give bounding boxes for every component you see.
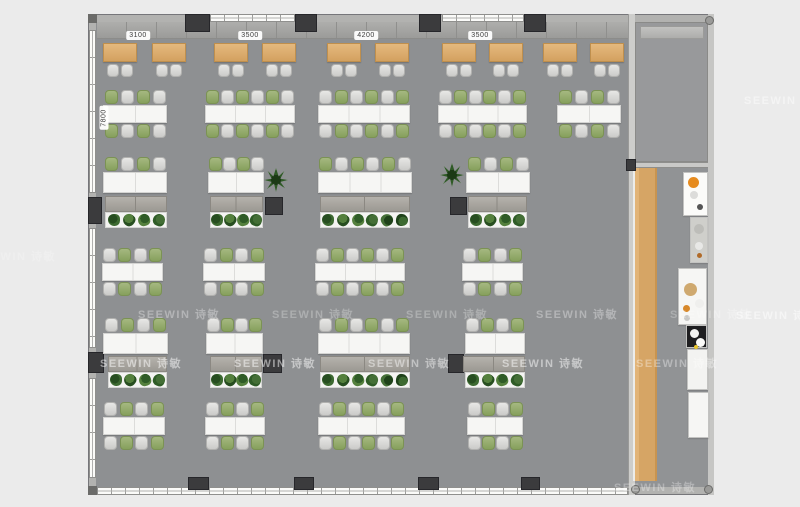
chair (439, 90, 452, 104)
column-pillar (524, 14, 546, 32)
chair (478, 282, 491, 296)
chair (366, 157, 379, 171)
chair (454, 124, 467, 138)
chair (281, 90, 294, 104)
chair (251, 282, 264, 296)
desk (466, 172, 530, 193)
chair (105, 157, 118, 171)
plant (137, 373, 152, 388)
chair (220, 282, 233, 296)
chair (335, 157, 348, 171)
chair (379, 64, 391, 77)
chair (483, 124, 496, 138)
planter-box (108, 372, 167, 388)
chair (484, 157, 497, 171)
lounge-table (103, 43, 137, 62)
chair (251, 248, 264, 262)
chair (331, 282, 344, 296)
chair (105, 90, 118, 104)
chair (335, 90, 348, 104)
chair (137, 124, 150, 138)
chair (206, 436, 219, 450)
chair (498, 90, 511, 104)
desk (318, 333, 410, 354)
plant (350, 373, 365, 388)
chair (333, 402, 346, 416)
chair (591, 90, 604, 104)
chair (350, 124, 363, 138)
lounge-table (543, 43, 577, 62)
chair (135, 402, 148, 416)
chair (135, 436, 148, 450)
chair (365, 318, 378, 332)
plant (379, 212, 396, 229)
column-pillar (265, 197, 283, 215)
lounge-table (590, 43, 624, 62)
chair (137, 90, 150, 104)
chair (575, 90, 588, 104)
chair (206, 90, 219, 104)
chair (377, 436, 390, 450)
chair (391, 402, 404, 416)
chair (594, 64, 606, 77)
chair (121, 64, 133, 77)
chair (149, 282, 162, 296)
chair (153, 157, 166, 171)
plant (136, 213, 151, 228)
chair (249, 318, 262, 332)
chair (221, 436, 234, 450)
chair (280, 64, 292, 77)
plant (235, 213, 250, 228)
chair (149, 248, 162, 262)
plant (395, 213, 408, 226)
chair (468, 402, 481, 416)
chair (607, 90, 620, 104)
chair (120, 402, 133, 416)
chair (500, 157, 513, 171)
chair (362, 436, 375, 450)
wall-corner (88, 486, 97, 495)
chair (345, 64, 357, 77)
plant (110, 374, 122, 386)
desk (557, 105, 621, 123)
plant (151, 212, 167, 228)
chair (396, 124, 409, 138)
plant (365, 212, 381, 228)
kitchen-unit (688, 392, 709, 438)
chair (153, 90, 166, 104)
chair (463, 248, 476, 262)
chair (591, 124, 604, 138)
corner-knob (705, 16, 714, 25)
chair (509, 248, 522, 262)
window (97, 487, 628, 495)
chair (235, 248, 248, 262)
storage-cabinet (320, 196, 410, 212)
watermark: SEEWIN 诗敏 (406, 306, 488, 322)
corner-knob (704, 485, 713, 494)
chair (559, 124, 572, 138)
chair (121, 90, 134, 104)
chair (151, 436, 164, 450)
chair (319, 157, 332, 171)
chair (103, 248, 116, 262)
chair (468, 436, 481, 450)
chair (104, 436, 117, 450)
plant (495, 373, 510, 388)
lounge-table (375, 43, 409, 62)
chair (134, 282, 147, 296)
chair (281, 124, 294, 138)
chair (346, 282, 359, 296)
window (210, 14, 295, 22)
chair (251, 90, 264, 104)
appliance-dot (684, 283, 697, 296)
floor-plan-canvas: 31003500420035007800 SEEWIN 诗敏SEEWIN 诗敏S… (0, 0, 800, 507)
watermark: SEEWIN 诗敏 (736, 307, 800, 323)
planter-box (105, 212, 167, 228)
column-pillar (626, 159, 636, 171)
plant (511, 212, 527, 228)
appliance-dot (688, 177, 699, 188)
chair (391, 282, 404, 296)
desk (103, 105, 167, 123)
meeting-room-cabinet (640, 26, 704, 39)
chair (513, 124, 526, 138)
storage-cabinet (468, 196, 527, 212)
chair (496, 402, 509, 416)
window (442, 14, 524, 22)
lounge-table (327, 43, 361, 62)
chair (319, 124, 332, 138)
chair (607, 124, 620, 138)
plant (247, 372, 263, 388)
chair (137, 157, 150, 171)
plant (379, 372, 396, 389)
chair (393, 64, 405, 77)
plant (322, 214, 334, 226)
chair (221, 318, 234, 332)
column-pillar (448, 354, 464, 373)
watermark: SEEWIN 诗敏 (368, 355, 450, 371)
window (89, 228, 96, 348)
chair (348, 402, 361, 416)
chair (396, 90, 409, 104)
plant (365, 372, 381, 388)
chair (460, 64, 472, 77)
desk (465, 333, 525, 354)
plant (122, 372, 139, 389)
plant (350, 213, 365, 228)
chair (391, 436, 404, 450)
watermark: SEEWIN 诗敏 (138, 306, 220, 322)
desk (318, 417, 405, 435)
watermark: SEEWIN 诗敏 (100, 355, 182, 371)
chair (331, 64, 343, 77)
chair (170, 64, 182, 77)
dimension-label: 7800 (100, 106, 109, 130)
chair (236, 402, 249, 416)
appliance-dot (697, 253, 702, 258)
plant (108, 214, 120, 226)
chair (235, 282, 248, 296)
chair (118, 248, 131, 262)
chair (333, 436, 346, 450)
chair (350, 90, 363, 104)
desk (208, 172, 264, 193)
chair (236, 124, 249, 138)
chair (469, 90, 482, 104)
watermark: SEEWIN 诗敏 (272, 306, 354, 322)
chair (319, 90, 332, 104)
chair (151, 402, 164, 416)
chair (204, 282, 217, 296)
desk (315, 263, 405, 281)
chair (121, 157, 134, 171)
lounge-table (262, 43, 296, 62)
plant (479, 372, 496, 389)
chair (498, 124, 511, 138)
chair (221, 402, 234, 416)
chair (346, 248, 359, 262)
chair (223, 157, 236, 171)
chair (118, 282, 131, 296)
chair (376, 282, 389, 296)
desk (205, 105, 295, 123)
appliance-dot (695, 242, 703, 250)
chair (513, 90, 526, 104)
chair (316, 282, 329, 296)
column-pillar (521, 477, 540, 490)
column-pillar (450, 197, 467, 215)
chair (236, 90, 249, 104)
chair (376, 248, 389, 262)
watermark: SEEWIN 诗敏 (744, 92, 800, 108)
plant (509, 372, 525, 388)
plant (470, 214, 482, 226)
chair (105, 318, 118, 332)
watermark: SEEWIN 诗敏 (614, 479, 696, 495)
chair (469, 124, 482, 138)
lounge-table (214, 43, 248, 62)
appliance-dot (690, 329, 699, 338)
chair (153, 124, 166, 138)
column-pillar (185, 14, 210, 32)
chair (463, 282, 476, 296)
chair (220, 248, 233, 262)
chair (204, 248, 217, 262)
dimension-label: 3500 (468, 31, 492, 40)
chair (221, 124, 234, 138)
plant (335, 372, 352, 389)
chair (494, 282, 507, 296)
planter-box (320, 212, 410, 228)
desk (206, 333, 263, 354)
chair (468, 157, 481, 171)
plant (497, 213, 512, 228)
chair (478, 248, 491, 262)
chair (483, 90, 496, 104)
desk (103, 333, 168, 354)
chair (251, 124, 264, 138)
meeting-room (635, 22, 708, 162)
kitchen-unit (683, 172, 708, 216)
chair (348, 436, 361, 450)
plant (467, 374, 479, 386)
chair (121, 318, 134, 332)
chair (446, 64, 458, 77)
chair (547, 64, 559, 77)
chair (361, 248, 374, 262)
chair (331, 248, 344, 262)
chair (439, 124, 452, 138)
plant (235, 373, 250, 388)
desk (103, 417, 165, 435)
plant (395, 373, 408, 386)
chair (319, 402, 332, 416)
kitchen-unit (690, 217, 708, 263)
chair (362, 402, 375, 416)
column-pillar (295, 14, 317, 32)
plant (482, 212, 499, 229)
watermark: SEEWIN 诗敏 (0, 248, 56, 264)
plant (248, 212, 264, 228)
storage-cabinet (210, 196, 263, 212)
chair (361, 282, 374, 296)
chair (391, 248, 404, 262)
chair (251, 436, 264, 450)
chair (209, 157, 222, 171)
column-pillar (294, 477, 314, 490)
desk (462, 263, 523, 281)
desk (102, 263, 163, 281)
desk (467, 417, 523, 435)
chair (510, 402, 523, 416)
chair (377, 402, 390, 416)
chair (509, 282, 522, 296)
plant (211, 374, 223, 386)
wood-bar-counter (633, 168, 657, 481)
chair (251, 402, 264, 416)
dimension-label: 3500 (238, 31, 262, 40)
chair (104, 402, 117, 416)
appliance-dot (697, 204, 703, 210)
planter-box (465, 372, 525, 388)
planter-box (320, 372, 410, 388)
chair (575, 124, 588, 138)
column-pillar (419, 14, 441, 32)
chair (121, 124, 134, 138)
storage-cabinet (105, 196, 167, 212)
chair (235, 318, 248, 332)
chair (482, 436, 495, 450)
plant (335, 212, 352, 229)
chair (206, 402, 219, 416)
chair (107, 64, 119, 77)
chair (365, 90, 378, 104)
plant (151, 372, 167, 388)
chair (134, 248, 147, 262)
chair (351, 157, 364, 171)
column-pillar (188, 477, 209, 490)
planter-box (210, 212, 263, 228)
chair (232, 64, 244, 77)
desk (438, 105, 527, 123)
watermark: SEEWIN 诗敏 (234, 355, 316, 371)
appliance-dot (694, 224, 704, 234)
watermark: SEEWIN 诗敏 (536, 306, 618, 322)
planter-box (468, 212, 527, 228)
chair (482, 402, 495, 416)
watermark: SEEWIN 诗敏 (502, 355, 584, 371)
chair (507, 64, 519, 77)
desk (318, 105, 410, 123)
chair (496, 318, 509, 332)
column-pillar (418, 477, 439, 490)
chair (316, 248, 329, 262)
chair (516, 157, 529, 171)
wall-corner (88, 14, 97, 23)
lounge-table (442, 43, 476, 62)
dimension-label: 3100 (126, 31, 150, 40)
plant (120, 212, 137, 229)
window (89, 30, 96, 193)
chair (381, 124, 394, 138)
desk (203, 263, 265, 281)
planter-box (210, 372, 262, 388)
plant (211, 214, 223, 226)
desk (205, 417, 265, 435)
chair (335, 124, 348, 138)
chair (559, 90, 572, 104)
chair (381, 90, 394, 104)
column-pillar (88, 197, 102, 224)
chair (381, 318, 394, 332)
chair (221, 90, 234, 104)
chair (237, 157, 250, 171)
chair (251, 157, 264, 171)
chair (103, 282, 116, 296)
chair (561, 64, 573, 77)
chair (266, 90, 279, 104)
chair (608, 64, 620, 77)
chair (156, 64, 168, 77)
lounge-table (489, 43, 523, 62)
chair (319, 436, 332, 450)
chair (511, 318, 524, 332)
chair (365, 124, 378, 138)
chair (494, 248, 507, 262)
chair (398, 157, 411, 171)
window (89, 378, 96, 478)
lounge-table (152, 43, 186, 62)
chair (236, 436, 249, 450)
chair (206, 124, 219, 138)
chair (120, 436, 133, 450)
chair (382, 157, 395, 171)
desk (318, 172, 412, 193)
chair (510, 436, 523, 450)
chair (493, 64, 505, 77)
chair (266, 64, 278, 77)
chair (496, 436, 509, 450)
dimension-label: 4200 (354, 31, 378, 40)
chair (218, 64, 230, 77)
desk (103, 172, 167, 193)
watermark: SEEWIN 诗敏 (636, 355, 718, 371)
appliance-dot (690, 191, 698, 199)
